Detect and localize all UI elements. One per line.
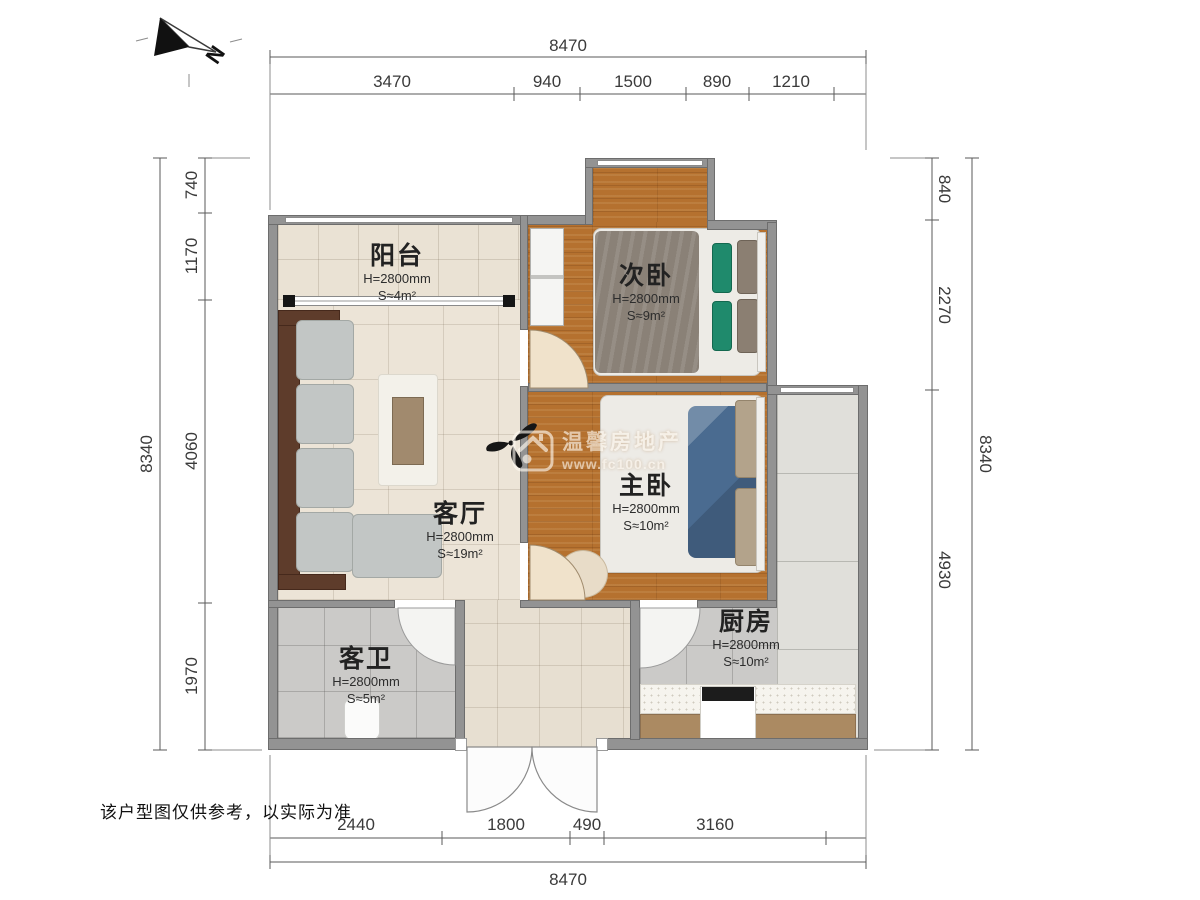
- master-bedroom-door: [530, 545, 585, 600]
- dim-left-total: 8340: [137, 435, 157, 473]
- room-area: S≈5m²: [332, 690, 400, 707]
- entry-double-door: [467, 747, 597, 812]
- secondary-bedroom-door: [530, 330, 588, 388]
- watermark-house-icon: [512, 426, 554, 472]
- dim-right-total: 8340: [975, 435, 995, 473]
- watermark-url: www.fc100.cn: [562, 456, 682, 472]
- dim-right-segment: 4930: [934, 551, 954, 589]
- north-compass: N: [136, 18, 242, 87]
- room-height: H=2800mm: [612, 290, 680, 307]
- room-area: S≈19m²: [426, 545, 494, 562]
- room-height: H=2800mm: [363, 270, 431, 287]
- room-height: H=2800mm: [612, 500, 680, 517]
- room-area: S≈10m²: [712, 653, 780, 670]
- room-label-bathroom: 客卫 H=2800mm S≈5m²: [332, 645, 400, 707]
- dim-right-segment: 840: [934, 175, 954, 203]
- room-name: 客厅: [426, 500, 494, 528]
- dim-right-segment: 2270: [934, 286, 954, 324]
- room-label-kitchen: 厨房 H=2800mm S≈10m²: [712, 608, 780, 670]
- dim-bottom-segment: 3160: [696, 815, 734, 835]
- room-name: 厨房: [712, 608, 780, 636]
- room-label-secondary-bedroom: 次卧 H=2800mm S≈9m²: [612, 262, 680, 324]
- dim-top-segment: 1500: [614, 72, 652, 92]
- room-name: 客卫: [332, 645, 400, 673]
- room-area: S≈10m²: [612, 517, 680, 534]
- room-area: S≈4m²: [363, 287, 431, 304]
- dim-bottom-total: 8470: [549, 870, 587, 890]
- kitchen-door: [640, 608, 700, 668]
- room-height: H=2800mm: [426, 528, 494, 545]
- dim-lines-left: [153, 158, 262, 750]
- dim-top-segment: 940: [533, 72, 561, 92]
- dim-left-segment: 1970: [182, 657, 202, 695]
- bathroom-door: [398, 608, 455, 665]
- watermark-brand: 温馨房地产: [562, 426, 682, 456]
- room-name: 主卧: [612, 472, 680, 500]
- watermark: 温馨房地产 www.fc100.cn: [512, 426, 682, 472]
- room-height: H=2800mm: [712, 636, 780, 653]
- dim-top-segment: 3470: [373, 72, 411, 92]
- dim-left-segment: 1170: [182, 238, 202, 275]
- dim-top-segment: 1210: [772, 72, 810, 92]
- dim-top-total: 8470: [549, 36, 587, 56]
- dim-left-segment: 4060: [182, 432, 202, 470]
- room-name: 阳台: [363, 242, 431, 270]
- dim-lines-right: [874, 158, 979, 750]
- room-height: H=2800mm: [332, 673, 400, 690]
- dim-top-segment: 890: [703, 72, 731, 92]
- entry-door-left-leaf: [467, 747, 532, 812]
- floor-plan-canvas: N: [0, 0, 1200, 900]
- dim-bottom-segment: 490: [573, 815, 601, 835]
- room-label-master-bedroom: 主卧 H=2800mm S≈10m²: [612, 472, 680, 534]
- room-name: 次卧: [612, 262, 680, 290]
- room-label-living-room: 客厅 H=2800mm S≈19m²: [426, 500, 494, 562]
- room-label-balcony: 阳台 H=2800mm S≈4m²: [363, 242, 431, 304]
- entry-door-right-leaf: [532, 747, 597, 812]
- dim-left-segment: 740: [182, 171, 202, 199]
- disclaimer-note: 该户型图仅供参考，以实际为准: [100, 798, 352, 823]
- dim-bottom-segment: 1800: [487, 815, 525, 835]
- room-area: S≈9m²: [612, 307, 680, 324]
